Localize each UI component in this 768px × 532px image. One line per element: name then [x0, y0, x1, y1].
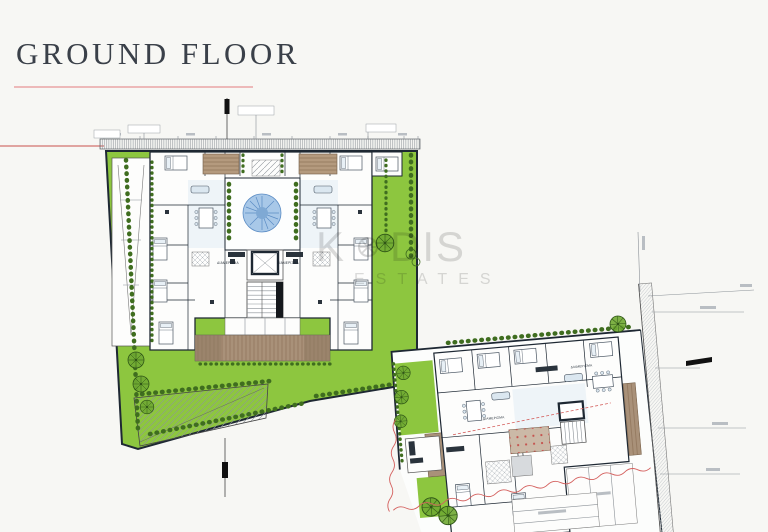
bed-icon: [354, 238, 368, 260]
staircase: [560, 420, 586, 444]
floor-plan-canvas: ΔΙΑΜΕΡΙΣΜΑ ΔΙΑΜΕΡΙΣΜΑ: [0, 0, 768, 532]
bed-icon: [153, 238, 167, 260]
courtyard-tree-icon: [243, 194, 281, 232]
bathroom: [511, 455, 533, 477]
header: GROUND FLOOR: [16, 36, 300, 72]
section-marker-top: [225, 98, 230, 139]
kitchen-counter: [286, 252, 303, 257]
bathroom: [313, 252, 330, 266]
dimension-label-box: [94, 130, 120, 138]
section-marker-bottom: [222, 438, 228, 497]
kitchen-counter: [228, 252, 245, 257]
page-title: GROUND FLOOR: [16, 36, 300, 72]
entrance-steps: [252, 160, 280, 176]
title-underline: [14, 86, 253, 88]
tree-icon: [376, 234, 394, 252]
bed-icon: [590, 342, 613, 358]
tree-icon: [128, 352, 144, 368]
bathroom: [550, 445, 568, 464]
bed-icon: [159, 322, 173, 344]
fixture: [165, 210, 169, 214]
bed-icon: [165, 156, 187, 170]
pergola: [299, 154, 337, 174]
sofa-icon: [191, 186, 209, 193]
fixture: [318, 300, 322, 304]
survey-line: [0, 106, 420, 149]
sofa-icon: [492, 392, 511, 401]
porch: [225, 318, 300, 335]
page: ΔΙΑΜΕΡΙΣΜΑ ΔΙΑΜΕΡΙΣΜΑ: [0, 0, 768, 532]
bed-icon: [477, 352, 500, 368]
dimension-label-box: [128, 125, 160, 133]
elevator: [247, 250, 283, 280]
patio-red-dots: [509, 426, 551, 453]
dimension-label-box: [238, 106, 274, 115]
bathroom: [485, 460, 511, 484]
bed-icon: [153, 280, 167, 302]
sofa-icon: [314, 186, 332, 193]
bed-icon: [340, 156, 362, 170]
bathroom: [192, 252, 209, 266]
sofa-icon: [564, 373, 583, 382]
tree-icon: [609, 315, 626, 332]
fixture: [358, 210, 362, 214]
left-plan: ΔΙΑΜΕΡΙΣΜΑ ΔΙΑΜΕΡΙΣΜΑ: [0, 98, 420, 497]
unit-label: ΔΙΑΜΕΡΙΣΜΑ: [217, 261, 239, 265]
unit-label: ΔΙΑΜΕΡΙΣΜΑ: [277, 261, 299, 265]
bed-icon: [514, 348, 537, 364]
tree-icon: [140, 400, 154, 414]
dimension-label-box: [366, 124, 396, 132]
north-arrow-icon: [686, 357, 712, 366]
bed-icon: [455, 484, 471, 507]
fixture: [210, 300, 214, 304]
wood-deck: [195, 335, 330, 361]
bed-icon: [344, 322, 358, 344]
bed-icon: [354, 280, 368, 302]
tree-icon: [133, 376, 149, 392]
bed-icon: [439, 358, 462, 374]
pergola: [203, 154, 239, 174]
kitchen: [405, 436, 442, 473]
